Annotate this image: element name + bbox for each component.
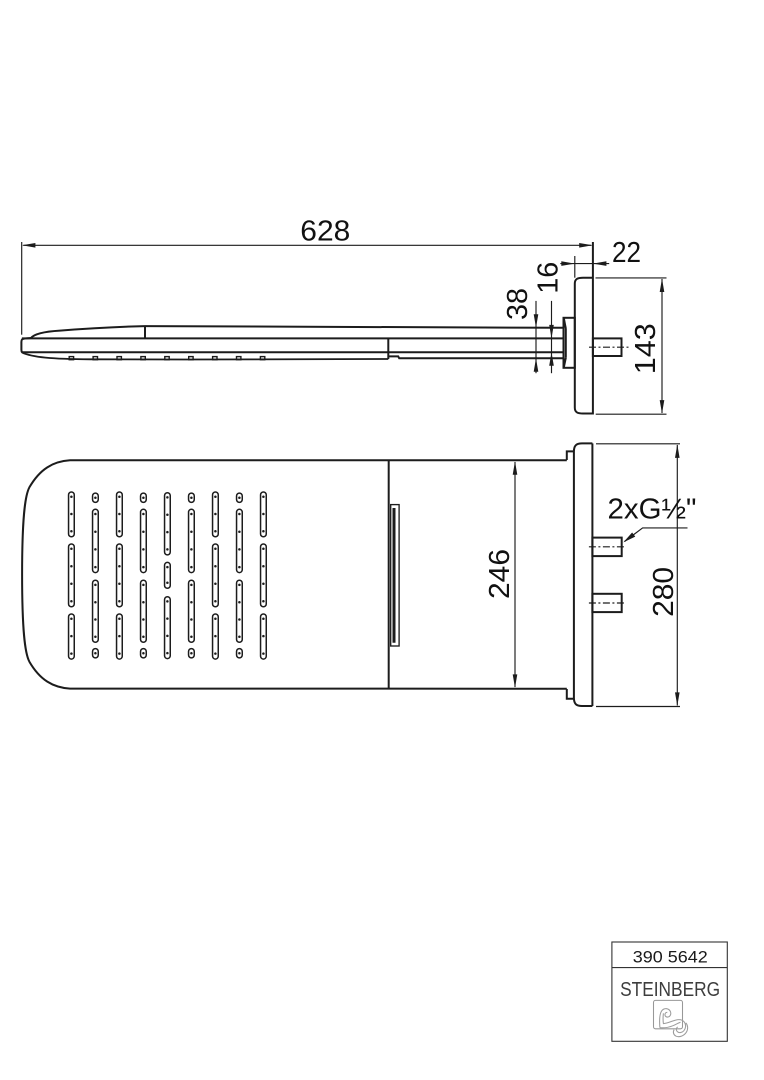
svg-text:143: 143 <box>630 323 662 374</box>
svg-text:246: 246 <box>484 549 516 599</box>
svg-text:38: 38 <box>502 288 534 320</box>
svg-text:628: 628 <box>300 215 350 247</box>
svg-text:390 5642: 390 5642 <box>633 949 708 967</box>
svg-text:280: 280 <box>648 567 680 617</box>
svg-text:22: 22 <box>612 237 641 269</box>
svg-text:2xG½": 2xG½" <box>608 493 697 525</box>
svg-text:16: 16 <box>533 262 565 294</box>
svg-text:STEINBERG: STEINBERG <box>620 979 720 1001</box>
